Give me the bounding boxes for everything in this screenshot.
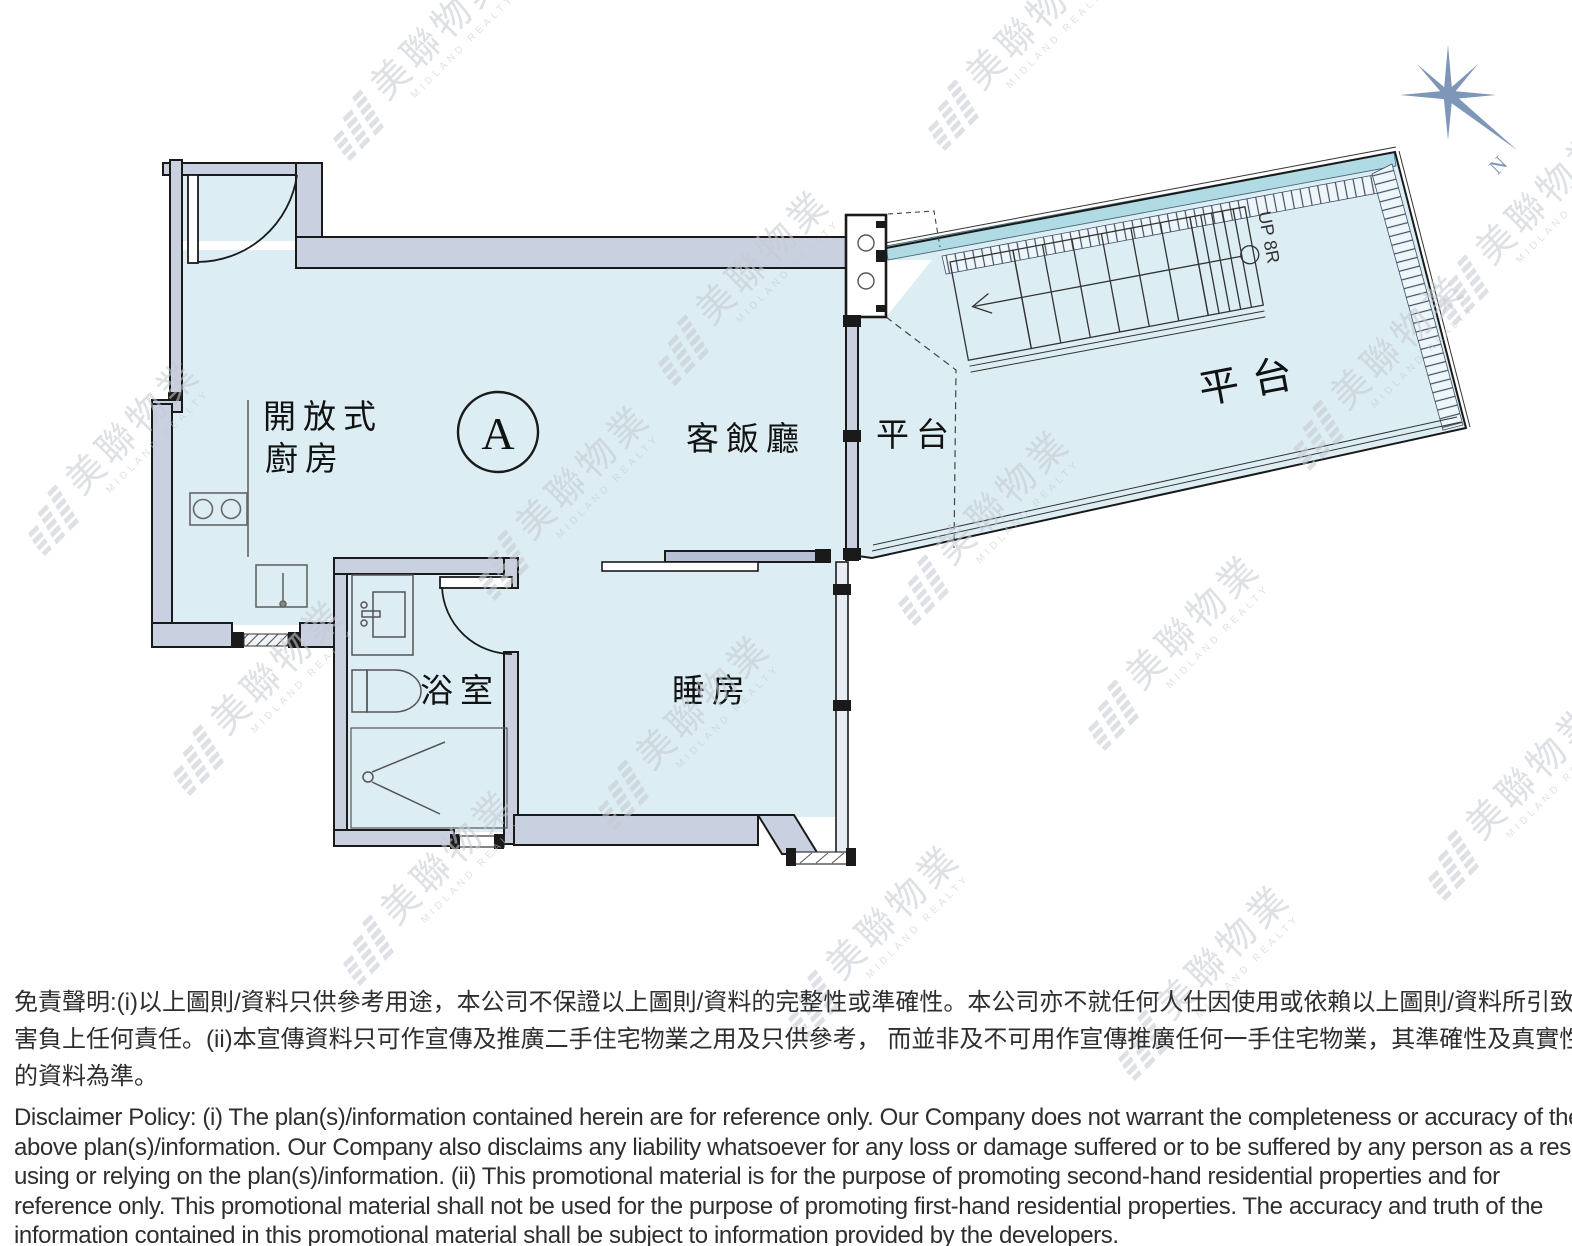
room-label-bathroom: 浴室: [420, 673, 500, 710]
floor-plan-page: UP 8R: [0, 0, 1572, 1246]
floor-plan-drawing: UP 8R: [0, 0, 1572, 965]
disclaimer-en-line1: Disclaimer Policy: (i) The plan(s)/infor…: [14, 1103, 1562, 1133]
disclaimer-zh-line1: 免責聲明:(i)以上圖則/資料只供參考用途，本公司不保證以上圖則/資料的完整性或…: [14, 984, 1562, 1021]
disclaimer-en-line3: using or relying on the plan(s)/informat…: [14, 1162, 1562, 1192]
room-label-bedroom: 睡房: [672, 673, 752, 710]
terrace-floor: [858, 153, 1466, 558]
room-label-living-dining: 客飯廳: [686, 421, 806, 458]
unit-label: A: [481, 408, 514, 459]
window-pillar: [846, 215, 886, 317]
disclaimer-en-line5: information contained in this promotiona…: [14, 1221, 1562, 1246]
disclaimer-block: 免責聲明:(i)以上圖則/資料只供參考用途，本公司不保證以上圖則/資料的完整性或…: [14, 984, 1562, 1246]
room-label-terrace-small: 平台: [876, 417, 956, 454]
room-label-open-kitchen-2: 廚房: [265, 441, 345, 478]
disclaimer-en-line4: reference only. This promotional materia…: [14, 1192, 1562, 1222]
compass-north-label: N: [1484, 151, 1512, 179]
compass-icon: N: [1400, 45, 1517, 179]
room-label-open-kitchen-1: 開放式: [263, 399, 383, 436]
disclaimer-zh-line3: 的資料為準。: [14, 1058, 1562, 1095]
disclaimer-en-line2: above plan(s)/information. Our Company a…: [14, 1133, 1562, 1163]
disclaimer-zh-line2: 害負上任何責任。(ii)本宣傳資料只可作宣傳及推廣二手住宅物業之用及只供參考， …: [14, 1021, 1562, 1058]
